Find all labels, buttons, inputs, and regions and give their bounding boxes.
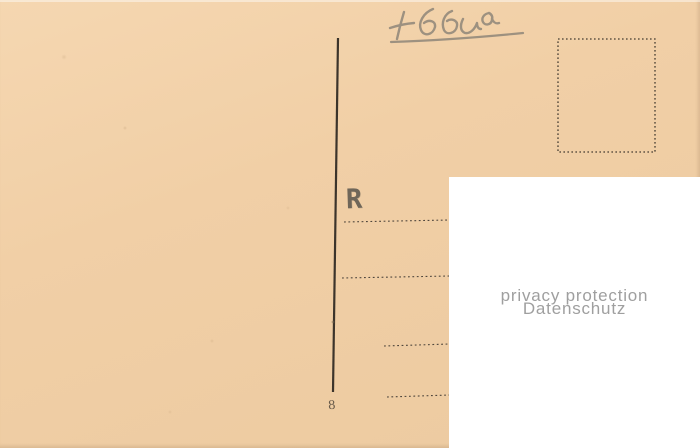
privacy-overlay: privacy protection Datenschutz bbox=[449, 177, 700, 448]
registration-stamp-r: R bbox=[345, 185, 362, 216]
handwritten-postcode bbox=[390, 9, 523, 42]
plate-number: 8 bbox=[328, 398, 337, 412]
address-line-4 bbox=[387, 395, 450, 397]
address-line-2 bbox=[342, 276, 450, 278]
address-line-1 bbox=[344, 220, 450, 222]
stamp-box bbox=[558, 39, 655, 152]
postcard-back: R 8 privacy protection Datenschutz bbox=[0, 0, 700, 448]
paper-speck bbox=[332, 321, 335, 324]
divider-line bbox=[333, 38, 338, 392]
address-line-3 bbox=[384, 344, 450, 346]
privacy-overlay-line2: Datenschutz bbox=[449, 302, 700, 315]
